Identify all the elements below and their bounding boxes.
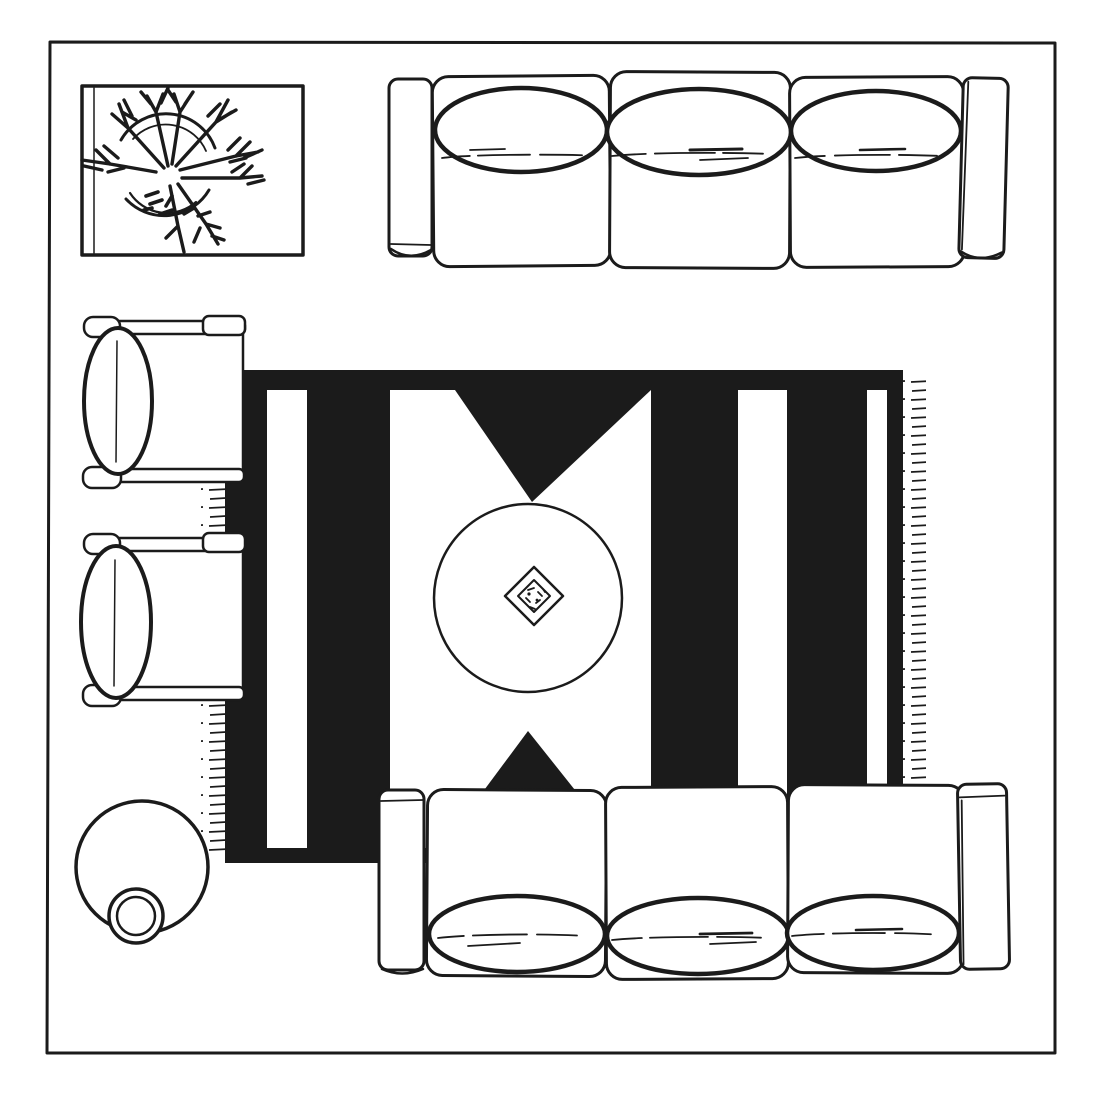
sofa-armrest-right — [959, 77, 1009, 258]
back-pillow — [791, 91, 961, 171]
plant-on-tray — [82, 86, 303, 255]
armchair-lower — [81, 533, 245, 706]
sofa-armrest-right — [957, 784, 1009, 970]
back-pillow — [435, 88, 607, 172]
armchair-arm-cap — [203, 316, 245, 335]
sofa-armrest-left — [379, 790, 424, 974]
coffee-table — [434, 504, 622, 692]
side-table-with-vase — [76, 801, 208, 943]
floor-plan-canvas — [0, 0, 1100, 1100]
rug-stripe — [867, 390, 887, 848]
floor-plan-illustration — [0, 0, 1100, 1100]
armchair-upper — [83, 316, 245, 488]
pillow-sketch-line — [114, 560, 115, 686]
sofa-top — [389, 72, 1008, 269]
sofa-bottom — [379, 784, 1010, 980]
armchair-back-pillow — [81, 546, 151, 698]
rug-stripe — [738, 390, 787, 848]
armchair-back-pillow — [84, 328, 152, 474]
sofa-armrest-left — [389, 79, 432, 256]
rug-stripe — [267, 390, 307, 848]
back-pillow — [607, 89, 791, 175]
armchair-arm-cap — [203, 533, 245, 552]
pillow-sketch-line — [116, 341, 117, 462]
